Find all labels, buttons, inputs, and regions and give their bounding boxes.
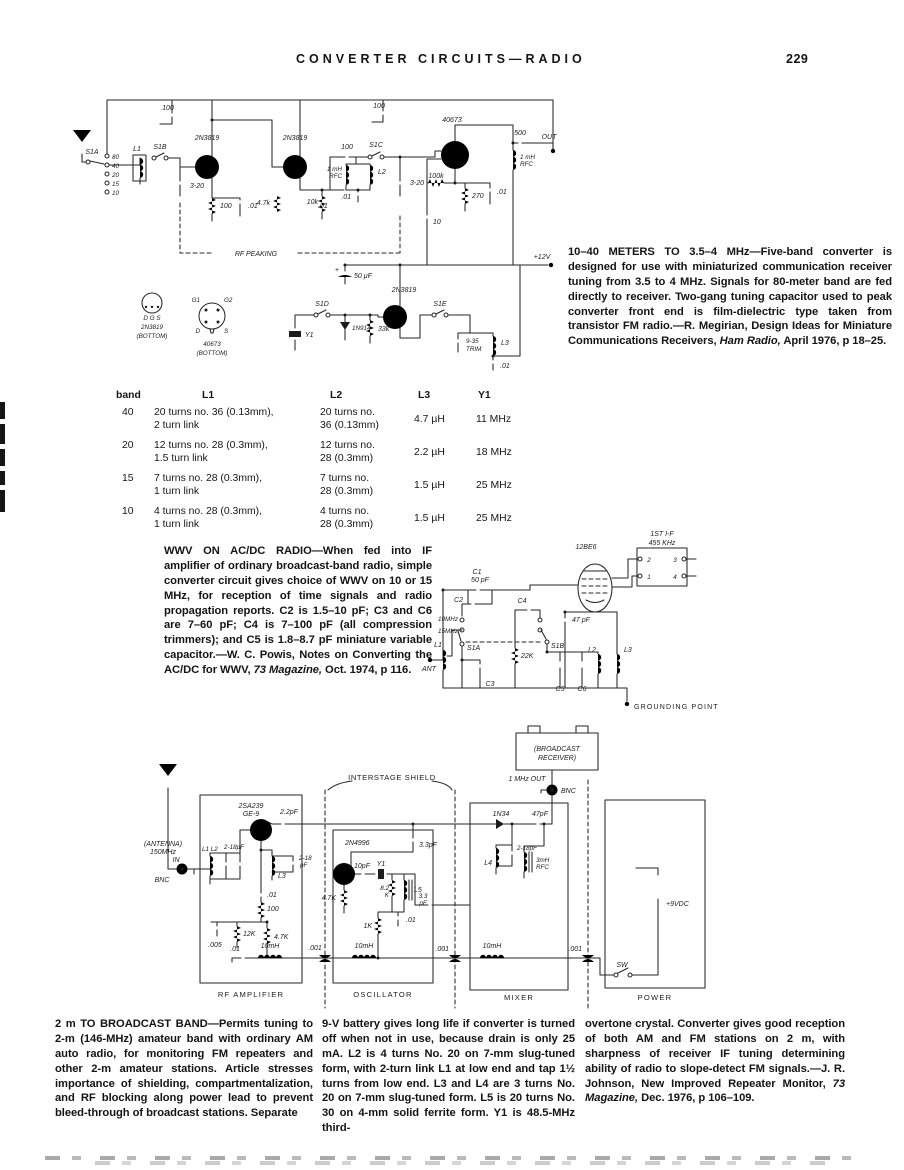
label-cap: C5 <box>556 686 565 693</box>
label-block: POWER <box>638 993 673 1002</box>
label-pin: 2 <box>646 557 651 564</box>
label-if: 1ST I-F <box>650 531 674 538</box>
label-if: 455 KHz <box>649 540 676 547</box>
label-cap: 3.3 <box>419 893 428 900</box>
rfc-3mh-icon <box>524 852 527 872</box>
label-grounding-point: GROUNDING POINT <box>634 704 719 711</box>
label-cap: .01 <box>500 363 510 370</box>
cell-line: 36 (0.13mm) <box>320 420 379 431</box>
interstage-shield-lines <box>325 780 588 1008</box>
crystal-y1-icon <box>375 867 387 881</box>
caption-five-band: 10–40 METERS TO 3.5–4 MHz—Five-band conv… <box>568 245 892 349</box>
wwv-labels: 1ST I-F 455 KHz 2 3 1 4 12BE6 C1 50 pF C… <box>421 531 719 711</box>
bnc-output-icon <box>547 785 558 796</box>
label-pinout: D G S <box>143 315 161 322</box>
label-battery: +9VDC <box>666 901 690 908</box>
pinout-40673 <box>199 303 225 333</box>
binding-mark <box>0 402 5 419</box>
if-box <box>637 548 687 586</box>
label-cap: .001 <box>308 945 322 952</box>
fet-2n3819-1-icon <box>195 155 219 179</box>
coil-l2-icon <box>370 165 373 185</box>
label-cap: .01 <box>318 203 328 210</box>
cell-l3: 1.5 µH <box>414 472 476 498</box>
label-coil: L3 <box>278 873 286 880</box>
choke-10mh-icon <box>352 950 376 958</box>
label-res: 33k <box>378 326 390 333</box>
label-cap: 10pF <box>354 863 371 870</box>
label-freq: 10MHz <box>438 616 459 623</box>
label-bnc: BNC <box>155 877 171 884</box>
diode-1n914-icon <box>340 322 350 330</box>
label-rfc: 1 mH <box>520 154 535 161</box>
cell-line: 1 turn link <box>154 486 199 497</box>
cell-line: 20 turns no. <box>320 407 375 418</box>
label-ant: 150MHz <box>150 849 177 856</box>
col-header-y1: Y1 <box>476 389 542 402</box>
caption-five-band-cite: Ham Radio, <box>720 335 781 347</box>
label-res: 12K <box>243 931 256 938</box>
label-switch: S1A <box>85 149 99 156</box>
label-pin: 3 <box>673 557 677 564</box>
label-choke: 10mH <box>483 943 503 950</box>
cell-l1: 20 turns no. 36 (0.13mm),2 turn link <box>154 406 320 432</box>
label-cap: C2 <box>454 597 463 604</box>
label-switch: S1A <box>467 645 481 652</box>
label-cap: C3 <box>486 681 495 688</box>
label-pinout: G2 <box>224 297 233 304</box>
cell-band: 10 <box>112 505 154 531</box>
caption-2m-col3-tail: Dec. 1976, p 106–109. <box>638 1092 754 1104</box>
cell-l2: 20 turns no.36 (0.13mm) <box>320 406 414 432</box>
binding-mark <box>0 490 5 512</box>
col-header-l2: L2 <box>320 389 414 402</box>
label-switch: S1E <box>433 301 447 308</box>
label-rfc: RFC <box>520 161 533 168</box>
cell-line: 28 (0.3mm) <box>320 519 373 530</box>
caption-wwv-text: WWV ON AC/DC RADIO—When fed into IF ampl… <box>164 545 432 676</box>
label-switch: SW <box>616 962 629 969</box>
label-cap: 100 <box>341 144 353 151</box>
cell-line: 1.5 turn link <box>154 453 208 464</box>
label-pinout: 2N3819 <box>140 324 164 331</box>
label-receiver: RECEIVER) <box>538 755 576 762</box>
schematic-wwv-converter <box>428 548 696 706</box>
label-fet: 2N3819 <box>391 287 417 294</box>
label-cap: 500 <box>514 130 526 137</box>
label-block: OSCILLATOR <box>353 990 412 999</box>
col-header-l3: L3 <box>414 389 476 402</box>
label-choke: 10mH <box>261 943 281 950</box>
label-cap: .001 <box>568 946 582 953</box>
binding-mark <box>0 449 5 466</box>
choke-10mh-icon <box>258 950 282 958</box>
label-cap: .01 <box>497 189 507 196</box>
label-cap: 47pF <box>532 811 549 818</box>
label-diode: 1N34 <box>493 811 510 818</box>
band-switch-contacts <box>105 154 109 194</box>
label-res: 4.7K <box>274 934 289 941</box>
label-cap: .005 <box>208 942 222 949</box>
caption-wwv-cite: 73 Magazine, <box>254 664 322 676</box>
label-switch: S1D <box>315 301 329 308</box>
coil-l1-icon <box>140 158 143 178</box>
label-freq: 15MHz <box>438 628 459 635</box>
label-receiver: (BROADCAST <box>534 746 581 753</box>
coil-l3-icon <box>272 856 275 876</box>
five-band-labels: 100 100 100 2N3819 2N3819 40673 2N3819 S… <box>85 103 557 370</box>
coil-winding-table: band L1 L2 L3 Y1 40 20 turns no. 36 (0.1… <box>112 389 550 538</box>
cell-l3: 1.5 µH <box>414 505 476 531</box>
transistor-2n4996-icon <box>333 863 355 885</box>
label-pinout: G1 <box>192 297 200 304</box>
plus12v-terminal-icon <box>549 263 553 267</box>
caption-five-band-tail: April 1976, p 18–25. <box>781 335 887 347</box>
label-crystal: Y1 <box>305 332 314 339</box>
table-row: 40 20 turns no. 36 (0.13mm),2 turn link … <box>112 406 550 432</box>
label-pinout: 40673 <box>203 341 221 348</box>
label-rfc: RFC <box>329 173 342 180</box>
label-cap: 47 pF <box>572 617 591 624</box>
label-coil: L3 <box>501 340 509 347</box>
label-tube: 12BE6 <box>575 544 596 551</box>
label-cap: .01 <box>406 917 416 924</box>
cell-l1: 7 turns no. 28 (0.3mm),1 turn link <box>154 472 320 498</box>
cell-line: 4 turns no. 28 (0.3mm), <box>154 506 262 517</box>
label-cap: 50 μF <box>354 273 373 280</box>
label-pin: 4 <box>673 574 677 581</box>
label-rfc: RFC <box>536 864 549 871</box>
label-rfc: 1 mH <box>327 166 342 173</box>
rfc2-icon <box>513 150 516 170</box>
label-cap: 10 <box>433 219 441 226</box>
caption-five-band-text: 10–40 METERS TO 3.5–4 MHz—Five-band conv… <box>568 246 892 347</box>
label-crystal: Y1 <box>377 861 386 868</box>
label-diode: 1N914 <box>352 325 371 332</box>
label-trimmer: 9-35 <box>466 338 479 345</box>
table-row: 10 4 turns no. 28 (0.3mm),1 turn link 4 … <box>112 505 550 531</box>
cell-line: 12 turns no. 28 (0.3mm), <box>154 440 268 451</box>
label-varcap: 2-18pF <box>223 844 245 851</box>
label-coil: L2 <box>378 169 386 176</box>
label-transistor: 2SA239 <box>238 803 264 810</box>
cell-l3: 4.7 µH <box>414 406 476 432</box>
label-band: 10 <box>112 190 120 197</box>
label-coil: L1 L2 <box>202 846 218 853</box>
wwv-coil-l2-icon <box>598 654 601 674</box>
caption-2m-col1: 2 m TO BROADCAST BAND—Permits tuning to … <box>55 1017 313 1121</box>
label-switch: S1B <box>153 144 167 151</box>
label-res: 8.2 <box>380 885 389 892</box>
label-cap: .01 <box>230 946 240 953</box>
cell-l2: 7 turns no.28 (0.3mm) <box>320 472 414 498</box>
label-band: 80 <box>112 154 120 161</box>
pinout-2n3819 <box>142 293 162 313</box>
label-cap: 3.3pF <box>419 842 438 849</box>
label-band: 40 <box>112 163 120 170</box>
cell-y1: 25 MHz <box>476 472 542 498</box>
label-plus: + <box>335 267 339 274</box>
label-ant: IN <box>173 857 181 864</box>
mosfet-40673-icon <box>441 141 469 169</box>
col-header-band: band <box>112 389 154 402</box>
label-cap: .001 <box>435 946 449 953</box>
label-res: 22K <box>520 653 534 660</box>
coil-l1l2-icon <box>210 856 213 876</box>
fet-2n3819-2-icon <box>283 155 307 179</box>
choke-10mh-icon <box>480 950 504 958</box>
cell-line: 20 turns no. 36 (0.13mm), <box>154 407 274 418</box>
label-cap: C6 <box>578 686 587 693</box>
label-ant: (ANTENNA) <box>144 841 182 848</box>
label-transistor: GE-9 <box>243 811 259 818</box>
label-varcap: pF <box>299 862 309 869</box>
label-shield: INTERSTAGE SHIELD <box>348 773 436 782</box>
label-pinout: S <box>224 328 229 335</box>
coil-l3-icon <box>493 336 496 356</box>
label-choke: 10mH <box>355 943 375 950</box>
label-band: 15 <box>112 181 120 188</box>
transistor-2sa239-icon <box>250 819 272 841</box>
cell-band: 20 <box>112 439 154 465</box>
label-coil: L1 <box>133 146 141 153</box>
label-cap: C4 <box>518 598 527 605</box>
label-res: K <box>385 892 390 899</box>
cell-l2: 12 turns no.28 (0.3mm) <box>320 439 414 465</box>
cell-line: 1 turn link <box>154 519 199 530</box>
caption-2m-col2: 9-V battery gives long life if converter… <box>322 1017 575 1136</box>
table-row: 20 12 turns no. 28 (0.3mm),1.5 turn link… <box>112 439 550 465</box>
col-header-l1: L1 <box>154 389 320 402</box>
label-cap: .01 <box>341 194 351 201</box>
coil-l4-icon <box>496 848 499 868</box>
label-varcap: 3-20 <box>190 183 204 190</box>
label-varcap: 3-20 <box>410 180 424 187</box>
caption-2m-col3: overtone crystal. Converter gives good r… <box>585 1017 845 1106</box>
wwv-coil-l1-icon <box>443 650 446 670</box>
cell-band: 40 <box>112 406 154 432</box>
label-rf-peaking: RF PEAKING <box>235 251 278 258</box>
label-supply: +12V <box>534 254 552 261</box>
label-cap: 100 <box>162 105 174 112</box>
binding-mark <box>0 471 5 485</box>
label-res: 10k <box>307 199 319 206</box>
label-pinout: D <box>195 328 200 335</box>
battery-9v-icon <box>650 875 666 899</box>
label-rfc: 3mH <box>536 857 550 864</box>
label-band: 20 <box>111 172 120 179</box>
label-res: 100 <box>267 906 279 913</box>
label-cap: 2.2pF <box>279 809 299 816</box>
label-coil: L4 <box>484 860 492 867</box>
cell-line: 7 turns no. 28 (0.3mm), <box>154 473 262 484</box>
caption-2m-col3-text: overtone crystal. Converter gives good r… <box>585 1018 845 1090</box>
cell-y1: 11 MHz <box>476 406 542 432</box>
label-fet: 2N3819 <box>194 135 220 142</box>
caption-wwv-tail: Oct. 1974, p 116. <box>322 664 411 676</box>
cell-y1: 18 MHz <box>476 439 542 465</box>
2m-wires <box>168 770 658 975</box>
coil-l5-icon <box>404 880 407 900</box>
label-res: 100 <box>220 203 232 210</box>
label-out: 1 MHz OUT <box>509 776 547 783</box>
binding-mark <box>0 424 5 444</box>
label-bnc: BNC <box>561 788 577 795</box>
label-coil: L1 <box>434 642 442 649</box>
tube-12be6-icon <box>578 564 612 612</box>
schematics-canvas: 100 100 100 2N3819 2N3819 40673 2N3819 S… <box>0 0 904 1170</box>
print-bleed-artifact <box>45 1156 860 1160</box>
label-switch: S1B <box>551 643 565 650</box>
label-fet: 40673 <box>442 117 462 124</box>
cell-l3: 2.2 µH <box>414 439 476 465</box>
2m-boxes <box>200 726 705 990</box>
label-pin: 1 <box>647 574 651 581</box>
cell-l1: 12 turns no. 28 (0.3mm),1.5 turn link <box>154 439 320 465</box>
label-varcap: 2-18 <box>298 855 312 862</box>
label-res: 1K <box>363 923 372 930</box>
cell-line: 7 turns no. <box>320 473 369 484</box>
cell-l1: 4 turns no. 28 (0.3mm),1 turn link <box>154 505 320 531</box>
label-block: RF AMPLIFIER <box>218 990 284 999</box>
bnc-input-icon <box>177 864 188 875</box>
label-switch: S1C <box>369 142 384 149</box>
cell-line: 28 (0.3mm) <box>320 453 373 464</box>
label-varcap: 2-18pF <box>516 845 538 852</box>
label-pinout: (BOTTOM) <box>196 350 227 357</box>
table-row: 15 7 turns no. 28 (0.3mm),1 turn link 7 … <box>112 472 550 498</box>
cell-y1: 25 MHz <box>476 505 542 531</box>
crystal-y1-icon <box>287 328 303 340</box>
label-transistor: 2N4996 <box>344 840 370 847</box>
label-cap: pF <box>418 900 428 907</box>
out-terminal-icon <box>551 149 555 153</box>
antenna-icon <box>159 764 177 788</box>
caption-wwv: WWV ON AC/DC RADIO—When fed into IF ampl… <box>164 544 432 678</box>
label-res: 270 <box>471 193 484 200</box>
label-block: MIXER <box>504 993 534 1002</box>
cell-line: 2 turn link <box>154 420 199 431</box>
print-bleed-artifact <box>95 1161 835 1165</box>
label-cap: 100 <box>373 103 385 110</box>
label-res: 100k <box>428 173 444 180</box>
diode-1n34-icon <box>496 819 504 829</box>
cell-l2: 4 turns no.28 (0.3mm) <box>320 505 414 531</box>
label-cap: 50 pF <box>471 577 490 584</box>
cell-band: 15 <box>112 472 154 498</box>
label-cap: .01 <box>267 892 277 899</box>
table-header-row: band L1 L2 L3 Y1 <box>112 389 550 402</box>
label-res: 4.7K <box>322 895 337 902</box>
grounding-terminal-icon <box>625 702 629 706</box>
label-cap: C1 <box>473 569 482 576</box>
label-out: OUT <box>542 134 558 141</box>
cell-line: 12 turns no. <box>320 440 375 451</box>
wwv-coil-l3-icon <box>617 654 620 674</box>
label-pinout: (BOTTOM) <box>136 333 167 340</box>
label-trimmer: TRIM <box>466 346 482 353</box>
label-coil: L2 <box>588 647 596 654</box>
rfc1-icon <box>346 165 349 185</box>
label-coil: L3 <box>624 647 632 654</box>
label-fet: 2N3819 <box>282 135 308 142</box>
label-res: 4.7k <box>257 200 271 207</box>
cell-line: 28 (0.3mm) <box>320 486 373 497</box>
cell-line: 4 turns no. <box>320 506 369 517</box>
